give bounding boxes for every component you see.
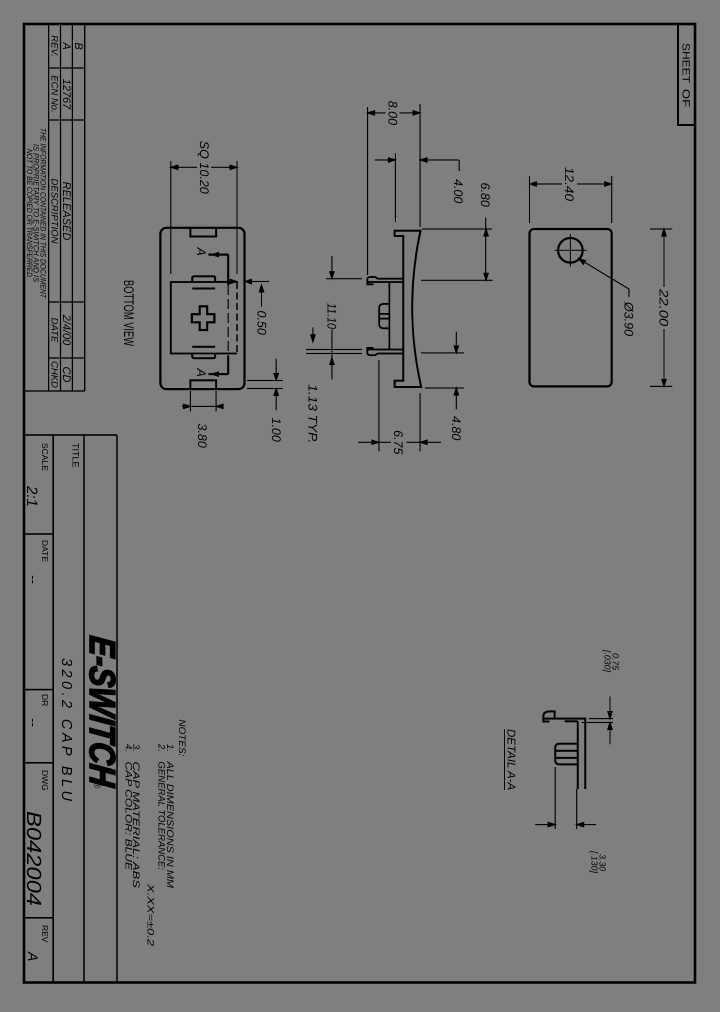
svg-text:A: A <box>25 951 41 961</box>
svg-text:NOTES:: NOTES: <box>176 719 187 756</box>
svg-text:DATE: DATE <box>48 318 59 343</box>
svg-text:DESCRIPTION: DESCRIPTION <box>48 179 59 244</box>
svg-text:E-SWITCH: E-SWITCH <box>82 634 123 789</box>
svg-text:6.75: 6.75 <box>391 430 405 454</box>
svg-text:4.80: 4.80 <box>449 416 463 440</box>
svg-text:[.130]: [.130] <box>590 850 600 874</box>
svg-text:12767: 12767 <box>60 79 72 110</box>
svg-text:B: B <box>72 42 84 49</box>
svg-text:®: ® <box>91 781 102 789</box>
svg-text:RELEASED: RELEASED <box>60 182 72 241</box>
svg-text:DETAIL A-A: DETAIL A-A <box>505 729 517 790</box>
svg-text:SCALE: SCALE <box>40 443 50 471</box>
svg-text:12.40: 12.40 <box>562 167 576 201</box>
svg-text:1.13 TYP.: 1.13 TYP. <box>305 384 319 443</box>
svg-text:6.80: 6.80 <box>478 183 492 207</box>
svg-text:TITLE: TITLE <box>71 443 81 468</box>
svg-text:ECN No.: ECN No. <box>48 75 59 112</box>
svg-text:SQ 10.20: SQ 10.20 <box>197 141 211 194</box>
svg-text:2:1: 2:1 <box>23 485 40 507</box>
svg-text:1.00: 1.00 <box>269 418 283 442</box>
svg-text:3.80: 3.80 <box>195 424 209 448</box>
svg-text:B042004: B042004 <box>22 811 45 906</box>
svg-text:CD: CD <box>60 367 72 383</box>
svg-text:22.00: 22.00 <box>657 288 671 326</box>
svg-text:0.50: 0.50 <box>255 311 269 335</box>
svg-text:SHEET: SHEET <box>680 43 692 84</box>
svg-text:REV: REV <box>40 925 50 943</box>
svg-text:320.2 CAP BLU: 320.2 CAP BLU <box>58 658 74 802</box>
svg-text:REV.: REV. <box>48 35 59 56</box>
svg-text:BOTTOM VIEW: BOTTOM VIEW <box>121 280 137 347</box>
svg-text:2/4/00: 2/4/00 <box>60 314 72 346</box>
svg-text:4.: 4. <box>123 744 134 752</box>
svg-text:A: A <box>194 247 208 256</box>
svg-text:11.10: 11.10 <box>324 303 338 329</box>
svg-text:DWG: DWG <box>40 770 50 791</box>
svg-text:4.00: 4.00 <box>451 179 465 203</box>
svg-text:A: A <box>60 41 72 49</box>
svg-text:NOT TO BE COPIED OR TRANSFERRE: NOT TO BE COPIED OR TRANSFERRED <box>25 149 34 277</box>
svg-text:A: A <box>194 368 208 377</box>
svg-text:Ø3.90: Ø3.90 <box>622 301 636 336</box>
svg-text:--: -- <box>26 718 41 727</box>
svg-text:GENERAL TOLERANCE:: GENERAL TOLERANCE: <box>156 762 167 871</box>
svg-text:2.: 2. <box>156 743 167 752</box>
svg-text:X.XX=±0.2: X.XX=±0.2 <box>145 883 156 947</box>
svg-text:CAP COLOR: BLUE: CAP COLOR: BLUE <box>123 762 134 871</box>
svg-text:[.030]: [.030] <box>603 649 613 673</box>
svg-text:CHKD: CHKD <box>48 361 59 388</box>
svg-text:DR: DR <box>40 694 50 706</box>
svg-text:OF: OF <box>680 89 692 107</box>
svg-text:--: -- <box>26 575 41 584</box>
svg-text:8.00: 8.00 <box>386 101 400 125</box>
svg-text:DATE: DATE <box>40 540 50 562</box>
